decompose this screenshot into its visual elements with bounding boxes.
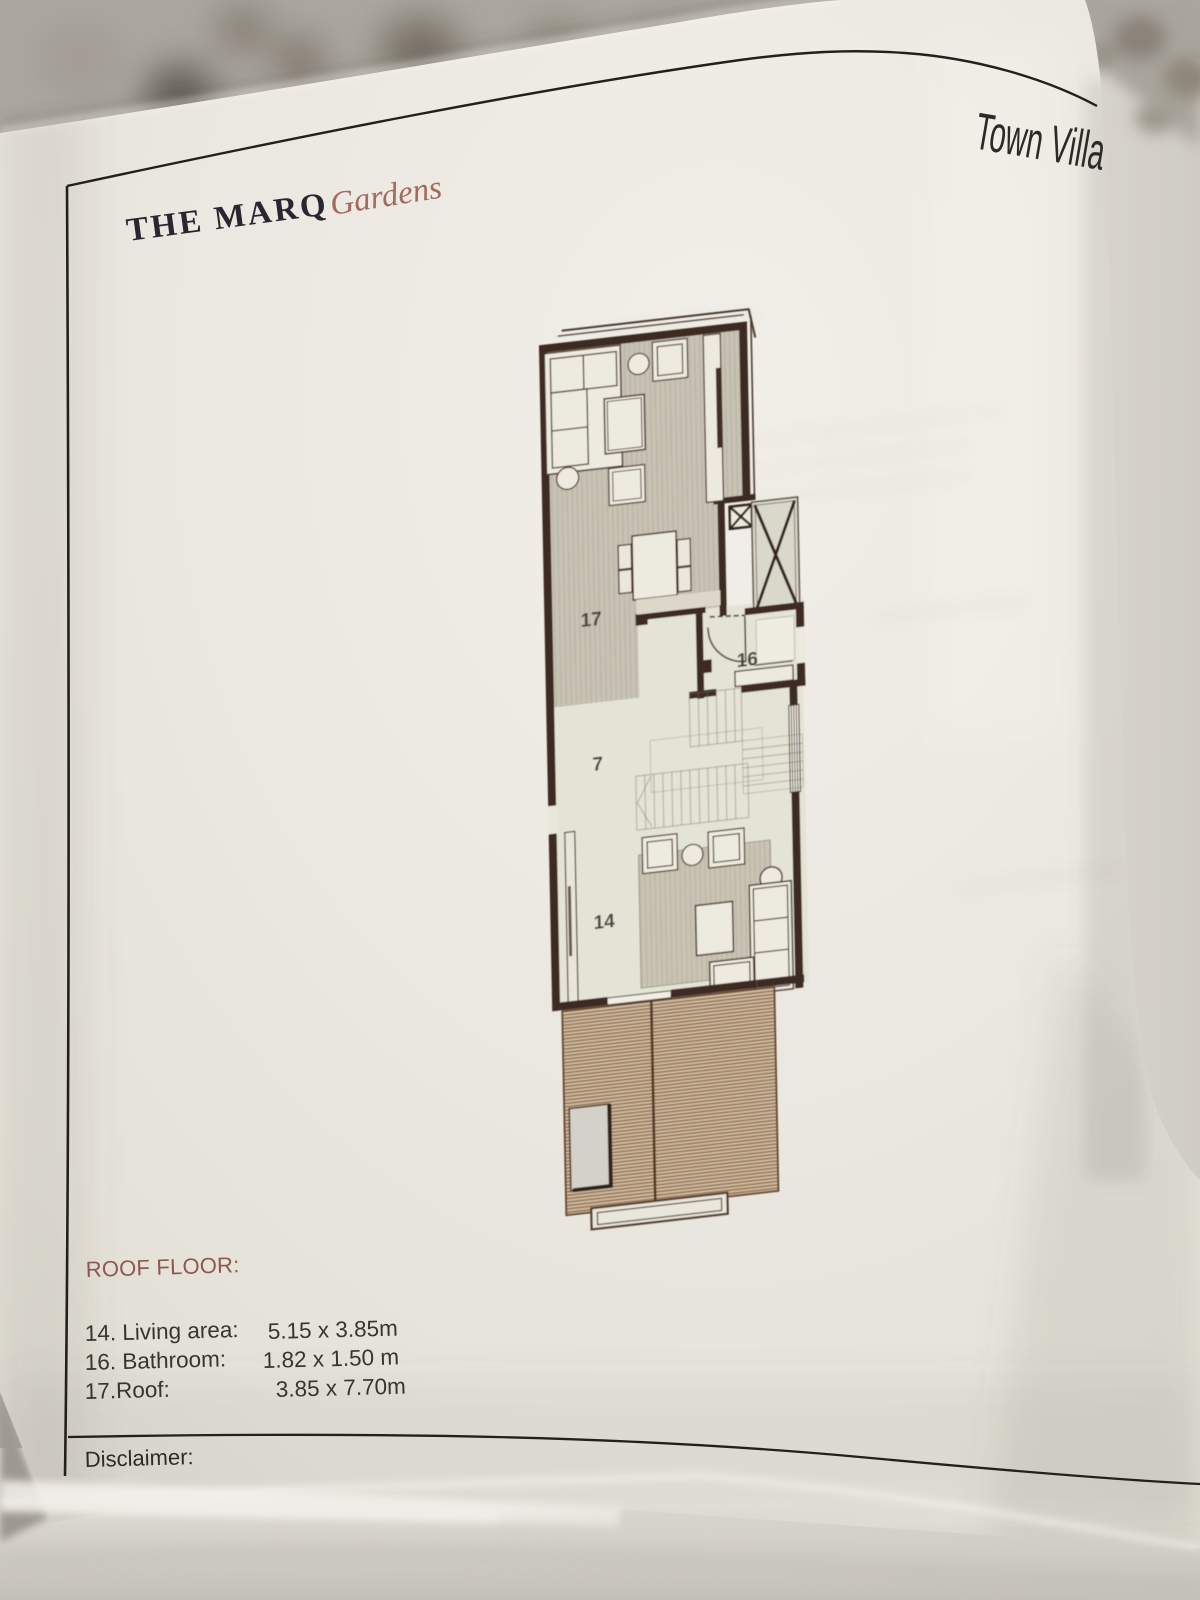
svg-text:ROOF FLOOR:: ROOF FLOOR: <box>85 1252 239 1282</box>
svg-text:14: 14 <box>593 911 615 934</box>
svg-text:16: 16 <box>737 649 759 672</box>
svg-text:17: 17 <box>580 609 602 632</box>
svg-text:16. Bathroom:: 16. Bathroom: <box>84 1346 226 1375</box>
svg-text:7: 7 <box>592 754 603 776</box>
svg-text:5.15 x 3.85m: 5.15 x 3.85m <box>267 1316 398 1344</box>
svg-text:3.85 x 7.70m: 3.85 x 7.70m <box>275 1374 406 1402</box>
svg-text:14. Living area:: 14. Living area: <box>84 1317 238 1346</box>
svg-text:17.Roof:: 17.Roof: <box>84 1377 170 1404</box>
svg-text:Disclaimer:: Disclaimer: <box>84 1444 193 1472</box>
svg-text:1.82 x 1.50 m: 1.82 x 1.50 m <box>262 1344 399 1373</box>
